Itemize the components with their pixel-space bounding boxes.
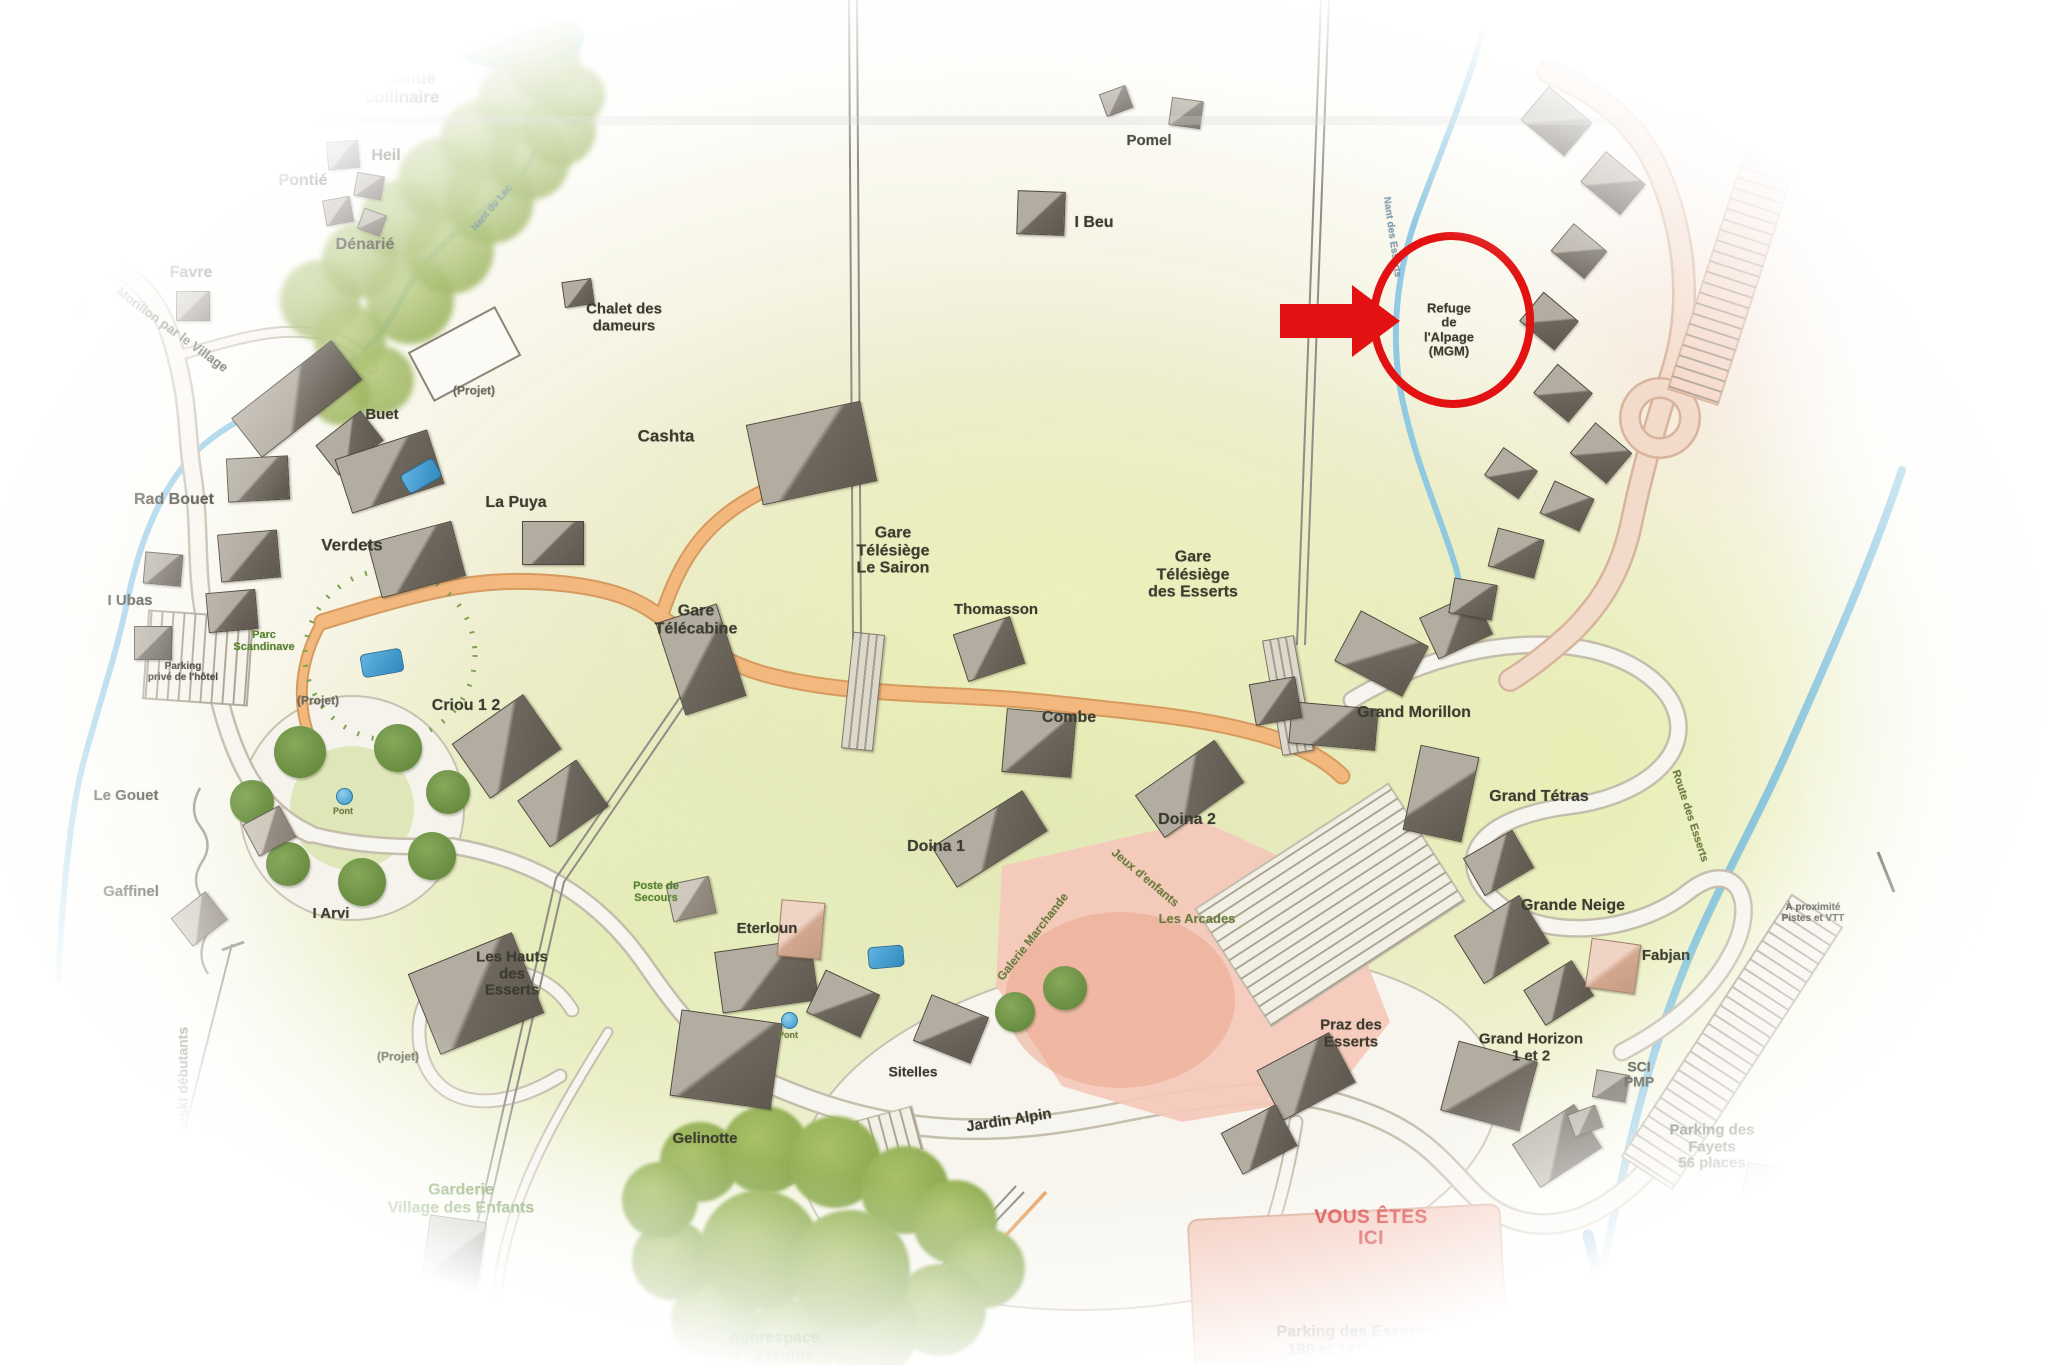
map-label-favre: Favre bbox=[170, 264, 213, 282]
map-label-parking: Parking privé de l'hôtel bbox=[148, 661, 218, 683]
map-label-thomasson: Thomasson bbox=[954, 602, 1038, 619]
map-label-itin-raire: Itinéraire (Promenade, VTT, Raquettes) bbox=[1707, 1325, 1845, 1347]
map-label-t-l-ski-d-butants: Téléski débutants bbox=[175, 1027, 190, 1145]
map-label-jardin-des: Jardin des Neiges bbox=[380, 1312, 435, 1336]
map-label-jeux-d-enfants: Jeux d'enfants bbox=[1109, 846, 1181, 910]
map-label-projet: (Projet) bbox=[453, 384, 495, 397]
map-label-combe: Combe bbox=[1042, 709, 1096, 727]
map-label-parking-des: Parking des Fayets 56 places bbox=[1669, 1122, 1754, 1172]
map-label-vous-tes: VOUS ÊTES ICI bbox=[1314, 1208, 1427, 1250]
map-label-ponti: Pontié bbox=[279, 172, 328, 190]
map-label-poste-de: Poste de Secours bbox=[633, 880, 679, 904]
map-label-nant-du-lac: Nant du Lac bbox=[469, 183, 514, 234]
map-label-chalet-des: Chalet des dameurs bbox=[586, 302, 662, 335]
map-label-buet: Buet bbox=[365, 407, 398, 424]
map-label-grand-morillon: Grand Morillon bbox=[1357, 704, 1471, 722]
map-label-refuge: Refuge de l'Alpage (MGM) bbox=[1424, 301, 1474, 358]
map-label-gelinotte: Gelinotte bbox=[672, 1131, 737, 1148]
map-label-gare: Gare Télécabine bbox=[655, 602, 738, 637]
map-label-rad-bouet: Rad Bouet bbox=[134, 491, 214, 509]
map-label-criou-1-2: Criou 1 2 bbox=[432, 697, 500, 715]
map-label-eterloun: Eterloun bbox=[737, 921, 798, 938]
scan-band bbox=[0, 1232, 260, 1239]
map-label-morillon-par-le-village: Morillon par le Village bbox=[114, 285, 231, 375]
map-label-les-hauts: Les Hauts des Esserts bbox=[476, 949, 548, 999]
map-label-doina-1: Doina 1 bbox=[907, 838, 965, 856]
map-label-sci: SCI PMP bbox=[1624, 1060, 1654, 1091]
map-label-gare: Gare Télésiège Le Sairon bbox=[857, 525, 930, 578]
map-label-pomel: Pomel bbox=[1126, 133, 1171, 150]
map-label-route-des-esserts: Route des Esserts bbox=[1669, 768, 1710, 863]
map-label-gare: Gare Télésiège des Esserts bbox=[1148, 549, 1238, 602]
map-label-heil: Heil bbox=[371, 147, 400, 165]
map-label-parking-des-esserts: Parking des Esserts 198 et 144 places bbox=[1277, 1323, 1430, 1358]
map-label-i-arvi: I Arvi bbox=[313, 906, 350, 923]
map-label-cochet: Cochet bbox=[77, 196, 135, 215]
map-label-les-arcades: Les Arcades bbox=[1159, 912, 1236, 926]
map-label-praz-des: Praz des Esserts bbox=[1320, 1018, 1382, 1051]
map-label-i-ubas: I Ubas bbox=[107, 593, 152, 610]
resort-map: LacRetenue collinaireHeilPontiéDénariéCo… bbox=[0, 0, 2048, 1365]
map-label-retenue: Retenue collinaire bbox=[365, 69, 440, 106]
map-label-grand-t-tras: Grand Tétras bbox=[1489, 788, 1589, 806]
map-label-parc: Parc Scandinave bbox=[233, 629, 294, 653]
map-label-grande-neige: Grande Neige bbox=[1521, 897, 1625, 915]
map-label-d-nari: Dénarié bbox=[336, 236, 395, 254]
map-label-galerie-marchande: Galerie Marchande bbox=[995, 891, 1072, 984]
scan-band bbox=[0, 116, 2048, 125]
map-label-garderie: Garderie Village des Enfants bbox=[388, 1181, 534, 1216]
map-label-nant-des-esserts: Nant des Esserts bbox=[1381, 196, 1403, 278]
map-label-fabjan: Fabjan bbox=[1642, 948, 1690, 965]
map-label-verdets: Verdets bbox=[321, 537, 382, 556]
map-label-abri-containers: Abri Containers tri sélectif bbox=[1782, 1173, 1857, 1195]
map-label-pont: Pont bbox=[333, 807, 353, 817]
map-label-doina-2: Doina 2 bbox=[1158, 811, 1216, 829]
map-label-jardin-alpin: Jardin Alpin bbox=[965, 1106, 1053, 1136]
map-label-la-puya: La Puya bbox=[485, 494, 546, 512]
labels-layer: LacRetenue collinaireHeilPontiéDénariéCo… bbox=[0, 0, 2048, 1365]
map-label-proximit: À proximité Pistes et VTT bbox=[1782, 902, 1845, 924]
map-label-sitelles: Sitelles bbox=[888, 1064, 937, 1079]
map-label-le-gouet: Le Gouet bbox=[93, 788, 158, 805]
map-label-gaffinel: Gaffinel bbox=[103, 884, 159, 901]
map-label-agorespace: Agorespace et 2 tennis bbox=[728, 1329, 820, 1364]
map-label-lac: Lac bbox=[423, 37, 452, 56]
map-label-grand-horizon: Grand Horizon 1 et 2 bbox=[1479, 1032, 1583, 1065]
map-label-projet: (Projet) bbox=[377, 1050, 419, 1063]
map-label-projet: (Projet) bbox=[297, 694, 339, 707]
map-label-i-beu: I Beu bbox=[1074, 214, 1113, 232]
map-label-pont: Pont bbox=[778, 1031, 798, 1041]
map-label-cashta: Cashta bbox=[638, 428, 695, 447]
